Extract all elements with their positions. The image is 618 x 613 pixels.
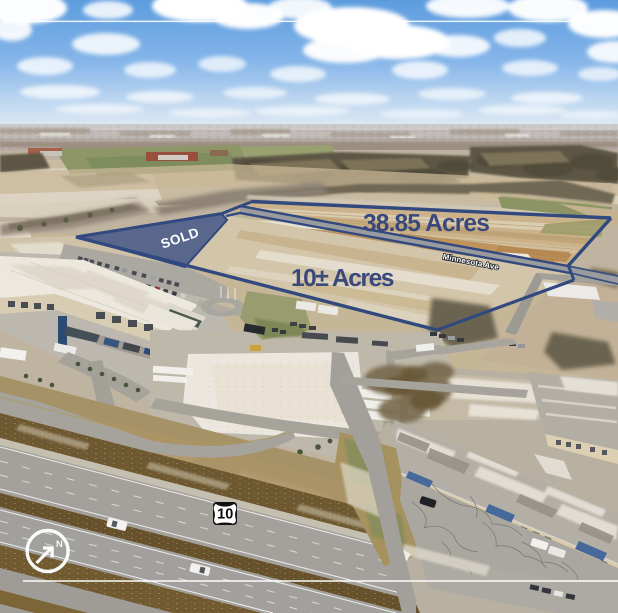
svg-text:38.85 Acres: 38.85 Acres	[363, 210, 489, 237]
svg-text:10: 10	[217, 507, 233, 523]
svg-text:10± Acres: 10± Acres	[291, 265, 394, 292]
svg-text:N: N	[56, 539, 63, 550]
